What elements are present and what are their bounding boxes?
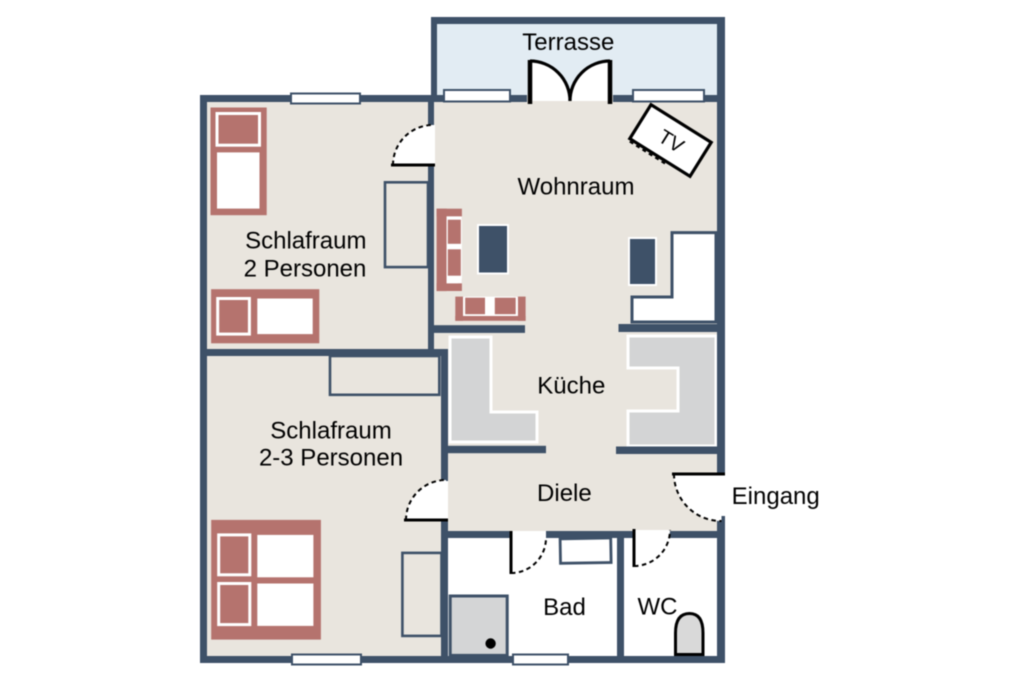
svg-text:Eingang: Eingang bbox=[732, 483, 820, 510]
svg-text:Diele: Diele bbox=[537, 480, 592, 507]
svg-text:2 Personen: 2 Personen bbox=[244, 256, 367, 283]
svg-text:2-3 Personen: 2-3 Personen bbox=[259, 445, 403, 472]
svg-text:Bad: Bad bbox=[543, 594, 586, 621]
svg-text:WC: WC bbox=[638, 594, 678, 621]
svg-text:Wohnraum: Wohnraum bbox=[518, 173, 635, 200]
svg-text:Terrasse: Terrasse bbox=[522, 29, 614, 56]
svg-text:Schlafraum: Schlafraum bbox=[245, 227, 366, 254]
svg-text:Schlafraum: Schlafraum bbox=[270, 417, 391, 444]
svg-text:Küche: Küche bbox=[537, 373, 605, 400]
